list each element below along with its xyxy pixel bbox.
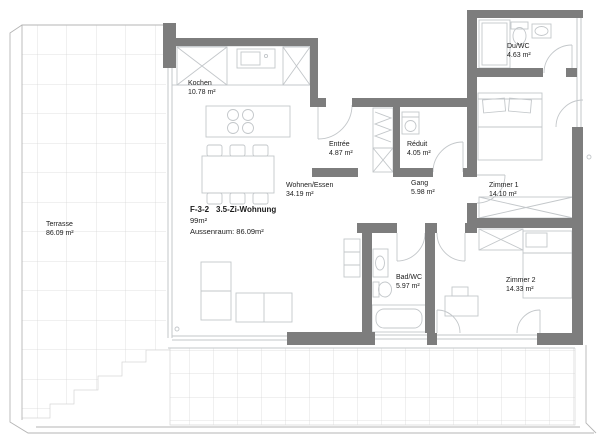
lower-paving-strip — [170, 347, 575, 425]
wall-south-east — [537, 333, 583, 345]
wall-duwc-south — [467, 68, 543, 77]
wall-right-stub — [566, 68, 577, 77]
room-area: 5.97 m² — [396, 283, 420, 290]
room-name: Entrée — [329, 141, 350, 148]
wall-duwc-west — [467, 10, 477, 107]
wall-gang-south-b — [425, 223, 437, 233]
room-name: Gang — [411, 180, 428, 187]
room-area: 4.87 m² — [329, 150, 353, 157]
room-area: 4.63 m² — [507, 52, 531, 59]
room-area: 34.19 m² — [286, 191, 314, 198]
wall-entree-west — [310, 38, 318, 107]
unit-type: 3.5-Zi-Wohnung — [216, 205, 276, 214]
wall-entree-south — [312, 168, 358, 177]
room-area: 86.09 m² — [46, 230, 74, 237]
wall-reduit-south — [393, 168, 433, 177]
wall-duwc-north — [477, 10, 583, 18]
wall-gang-east-a — [467, 107, 477, 172]
unit-code: F-3-2 — [190, 205, 210, 214]
wall-mid-north — [352, 98, 467, 107]
floor-plan-canvas: Terrasse 86.09 m² Kochen 10.78 m² Wohnen… — [0, 0, 600, 445]
paving-grid — [170, 347, 575, 425]
room-area: 14.33 m² — [506, 286, 534, 293]
room-name: Terrasse — [46, 221, 73, 228]
wall-east — [572, 127, 583, 345]
room-name: Réduit — [407, 141, 427, 148]
room-name: Du/WC — [507, 43, 530, 50]
wall-south-main — [287, 332, 375, 345]
room-area: 5.98 m² — [411, 189, 435, 196]
room-name: Zimmer 1 — [489, 182, 519, 189]
room-area: 14.10 m² — [489, 191, 517, 198]
wall-bad-zimmer2 — [425, 233, 435, 333]
room-area: 4.05 m² — [407, 150, 431, 157]
room-name: Wohnen/Essen — [286, 182, 333, 189]
room-area: 10.78 m² — [188, 89, 216, 96]
wall-entree-stub — [310, 98, 326, 107]
wall-kitchen-north — [176, 38, 318, 46]
wall-gang-south-c — [465, 223, 477, 233]
room-name: Kochen — [188, 80, 212, 87]
room-name: Zimmer 2 — [506, 277, 536, 284]
wall-closet-east — [393, 107, 400, 172]
unit-outdoor-area: Aussenraum: 86.09m² — [190, 227, 264, 236]
wall-south-mid — [427, 333, 437, 345]
wall-bad-west — [362, 223, 372, 338]
wall-zimmer1-zimmer2 — [468, 218, 583, 228]
room-name: Bad/WC — [396, 274, 422, 281]
wall-pillar — [163, 23, 176, 68]
unit-living-area: 99m² — [190, 216, 208, 225]
